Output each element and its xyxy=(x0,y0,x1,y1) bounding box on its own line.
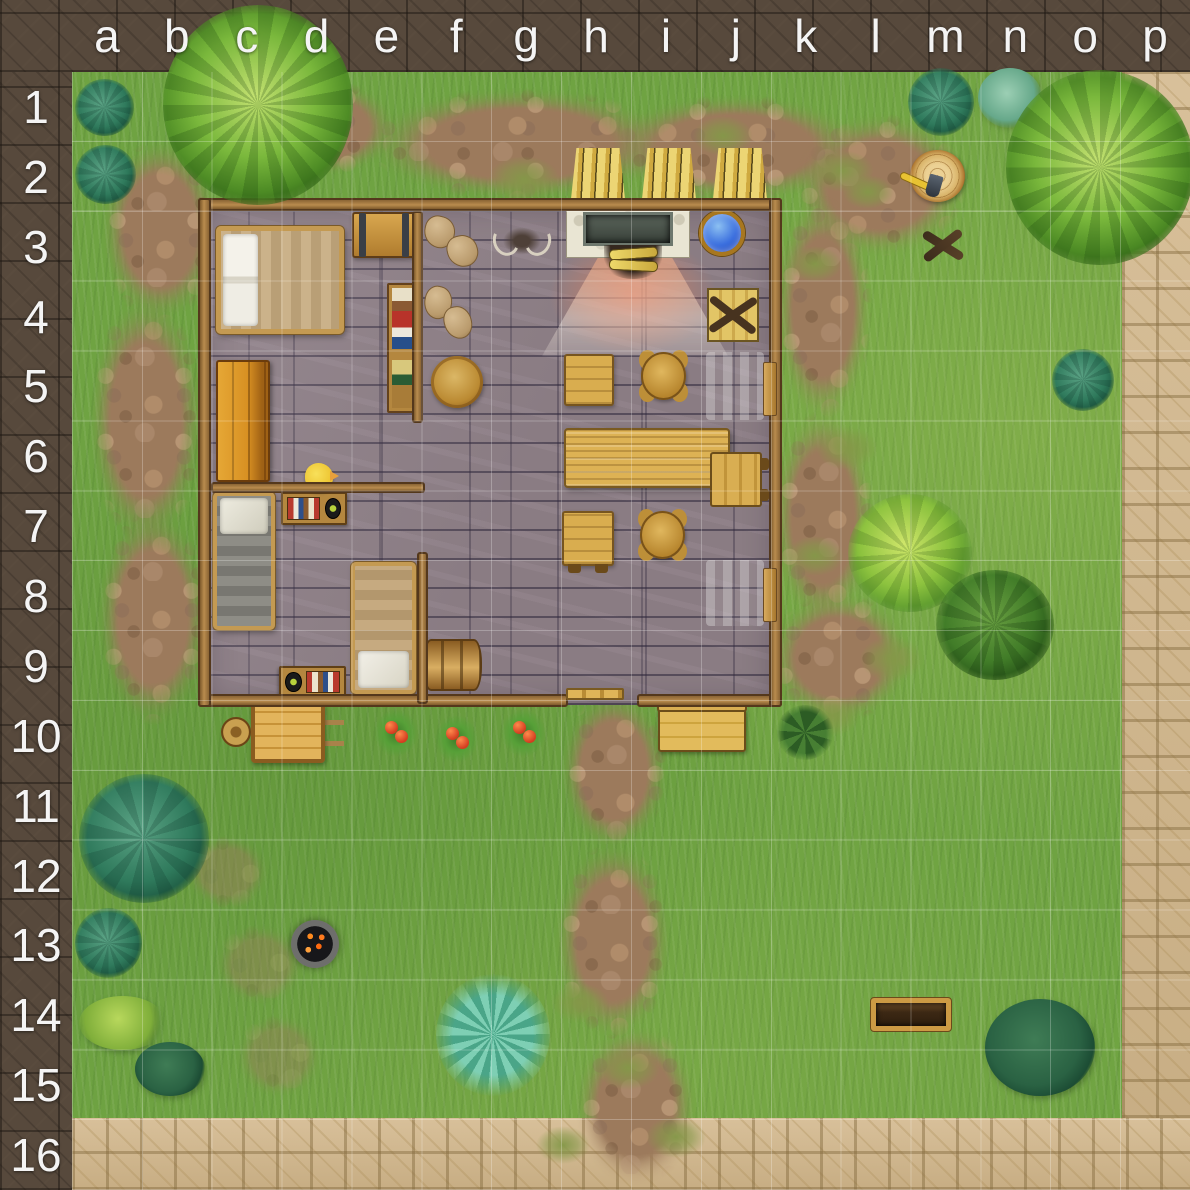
battle-map: abcdefghijklmnop12345678910111213141516 xyxy=(0,0,1190,1190)
wall-south-east xyxy=(637,694,782,707)
hay-sheaf-2 xyxy=(642,148,696,199)
map-border-left xyxy=(0,72,72,1190)
dirt-patch-faint-c xyxy=(233,1012,325,1100)
grass-tuft-7 xyxy=(816,426,878,470)
dirt-path-door-a xyxy=(558,688,670,853)
wheelbarrow xyxy=(218,702,344,764)
single-bed-tan xyxy=(351,562,416,694)
grain-sacks-2 xyxy=(424,285,472,339)
teal-bush-a1 xyxy=(75,79,134,136)
square-table-south xyxy=(562,511,614,566)
dirt-path-east-a xyxy=(772,190,874,425)
grass-tuft-12 xyxy=(596,1046,660,1090)
grass-tuft-1 xyxy=(488,156,560,202)
teal-fern-tree xyxy=(436,974,550,1096)
small-bench-east xyxy=(710,452,762,507)
grass-tuft-4 xyxy=(788,246,842,282)
firewood-logs xyxy=(604,245,662,279)
broken-crate xyxy=(707,288,759,342)
antler-trophy xyxy=(494,221,550,261)
light-bush-a14 xyxy=(79,996,166,1050)
leafy-plant xyxy=(776,705,834,760)
tomato-plant-3 xyxy=(501,709,546,757)
wardrobe xyxy=(216,360,270,482)
teal-bush-n5 xyxy=(1052,349,1114,411)
teal-bush-a13 xyxy=(75,908,142,978)
book-table-north xyxy=(281,492,347,525)
big-tree-top-right xyxy=(1006,70,1190,265)
round-stool-north xyxy=(641,352,686,400)
window-shutter-2 xyxy=(763,568,777,622)
big-teal-bush-a11 xyxy=(79,774,209,903)
hay-sheaf-3 xyxy=(713,148,767,199)
grain-sacks-1 xyxy=(424,215,478,267)
round-stool-south xyxy=(640,511,685,559)
wall-inner-horizontal xyxy=(211,482,425,493)
round-table xyxy=(431,356,483,408)
wall-east xyxy=(769,198,782,707)
tomato-plant-2 xyxy=(435,715,478,763)
window-light-east-1 xyxy=(706,352,764,420)
tomato-plant-1 xyxy=(374,709,418,757)
hay-sheaf-1 xyxy=(571,148,625,199)
grass-tuft-14 xyxy=(646,1116,706,1158)
grass-tuft-11 xyxy=(551,983,609,1023)
garden-bench xyxy=(658,708,746,752)
big-dining-table xyxy=(564,428,730,488)
single-bed-gray xyxy=(213,492,275,630)
barrel xyxy=(423,639,482,691)
dark-bush-b14 xyxy=(135,1042,205,1096)
wooden-trough xyxy=(871,998,951,1031)
teal-bush-m1 xyxy=(908,68,974,136)
wall-inner-vertical-north xyxy=(412,211,423,423)
wall-inner-vertical-south xyxy=(417,552,428,704)
door-threshold xyxy=(566,688,624,700)
grass-tuft-9 xyxy=(860,636,924,682)
fire-pit xyxy=(291,920,339,968)
grass-tuft-8 xyxy=(786,536,844,576)
wall-west xyxy=(198,198,211,707)
teal-bush-a2 xyxy=(75,145,136,204)
water-basin xyxy=(699,210,745,256)
tree-stump-with-axe xyxy=(910,150,965,202)
double-bed xyxy=(216,226,344,334)
grass-tuft-13 xyxy=(536,1126,590,1164)
dark-leafy-tree xyxy=(936,570,1054,680)
wall-south-west xyxy=(198,694,568,707)
square-table-north xyxy=(564,354,614,406)
dirt-path-left-c xyxy=(94,505,212,730)
big-tree-top-left xyxy=(163,5,353,205)
grass-tuft-5 xyxy=(842,175,894,209)
window-shutter-1 xyxy=(763,362,777,416)
window-light-east-2 xyxy=(706,560,764,626)
dark-bush-n14 xyxy=(985,999,1095,1096)
crossed-sticks xyxy=(920,224,966,266)
storage-chest xyxy=(352,212,416,258)
